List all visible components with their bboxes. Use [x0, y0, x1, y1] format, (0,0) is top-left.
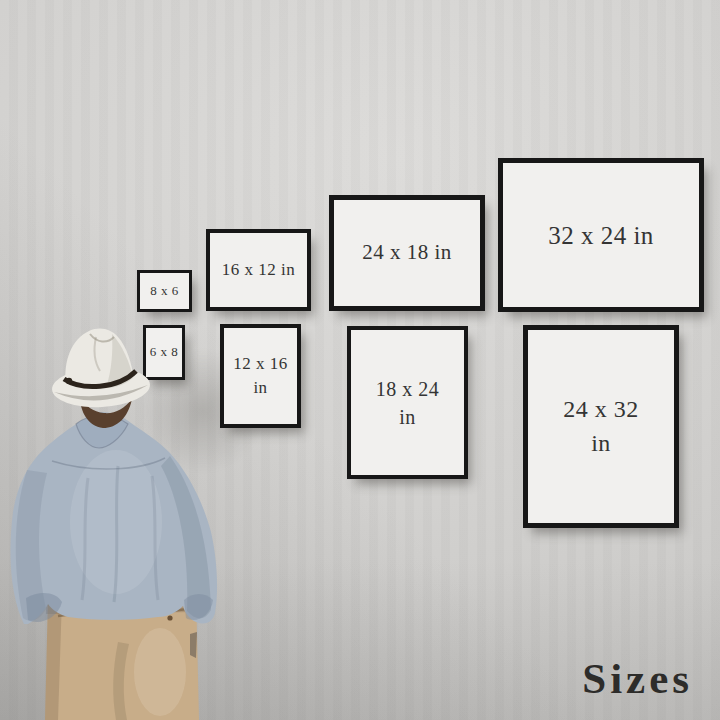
- pants-pocket-button: [167, 615, 172, 620]
- pants-pocket-left: [58, 613, 80, 616]
- frame-size-label: 32 x 24 in: [548, 218, 654, 253]
- shirt-left-shade: [16, 470, 47, 621]
- pants-highlight: [134, 628, 186, 716]
- hat-crease: [95, 337, 100, 371]
- pants-left-shade: [45, 597, 62, 720]
- shirt-cuff-left: [26, 593, 62, 622]
- frame-24x18: 24 x 18 in: [329, 195, 485, 311]
- scene: 8 x 6 16 x 12 in 24 x 18 in 32 x 24 in 6…: [0, 0, 720, 720]
- frame-size-label: 6 x 8: [150, 343, 179, 361]
- frame-6x8: 6 x 8: [143, 325, 185, 380]
- frame-size-label: 16 x 12 in: [222, 258, 295, 282]
- frame-size-label: 24 x 32 in: [555, 393, 647, 460]
- hat-band-knot: [66, 378, 72, 384]
- shirt-cuff-right: [184, 594, 213, 620]
- frame-12x16: 12 x 16 in: [220, 324, 301, 428]
- arm-gap-shadow: [190, 632, 197, 658]
- sizes-caption: Sizes: [582, 654, 693, 703]
- pants-pocket-right: [152, 609, 188, 613]
- frame-24x32: 24 x 32 in: [523, 325, 679, 528]
- frame-16x12: 16 x 12 in: [206, 229, 311, 311]
- frame-size-label: 12 x 16 in: [230, 352, 292, 400]
- pants-waist-shadow: [46, 593, 198, 614]
- shirt-fold-2: [82, 478, 88, 600]
- frame-32x24: 32 x 24 in: [498, 158, 704, 312]
- frame-size-label: 24 x 18 in: [362, 238, 452, 267]
- frame-8x6: 8 x 6: [137, 270, 192, 312]
- pants-leg-split: [113, 642, 129, 720]
- hat-dent: [90, 334, 114, 342]
- frame-18x24: 18 x 24 in: [347, 326, 468, 479]
- frame-size-label: 18 x 24 in: [370, 375, 446, 431]
- frame-size-label: 8 x 6: [150, 282, 179, 300]
- man-pants: [45, 593, 199, 720]
